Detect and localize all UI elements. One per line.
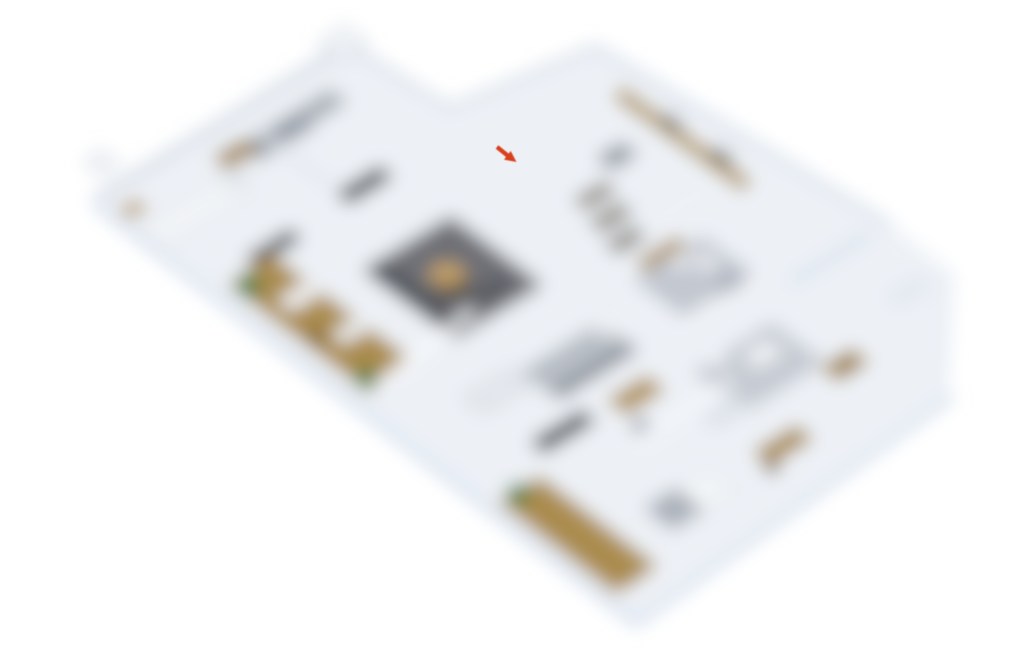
balcony1-plant-2 <box>355 368 377 390</box>
floorplan-viewport <box>0 0 1024 662</box>
bathroom2-vanity-basin <box>840 360 852 368</box>
living-coffee-table <box>428 262 466 286</box>
balcony2-plant <box>507 483 529 505</box>
balcony1-plant-1 <box>236 274 260 298</box>
left-wall-protrusion <box>84 150 120 176</box>
bedroom3-chair2-wood <box>764 462 780 474</box>
bedroom3-chair-gray <box>631 418 649 432</box>
floorplan-3d-render <box>0 0 1024 662</box>
bathroom2-fixture <box>710 354 726 366</box>
floorplan-shapes <box>84 26 952 624</box>
bathroom1-toilet <box>697 255 715 269</box>
balcony1-side-table <box>308 332 324 344</box>
